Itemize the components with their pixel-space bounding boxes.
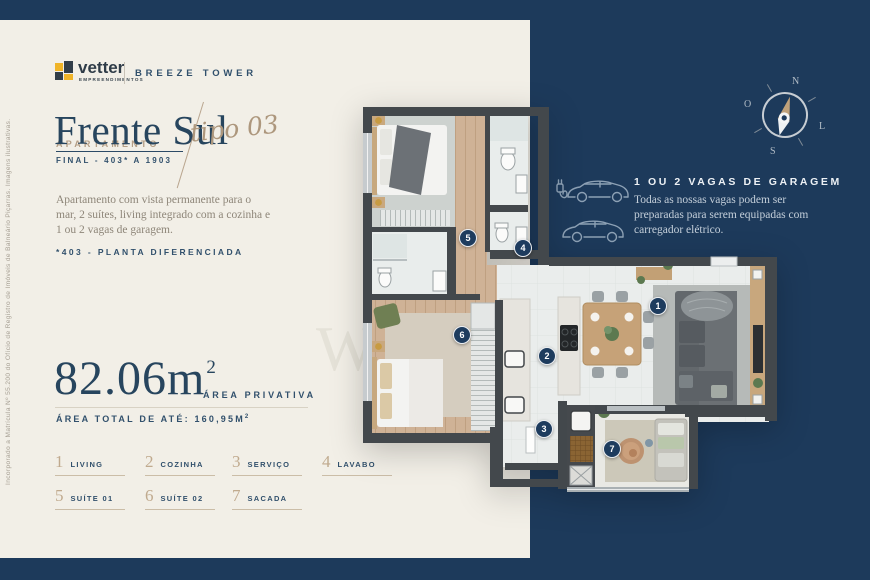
legend-item-living: 1LIVING [55,452,141,476]
plan-markers-layer: 1234567 [355,75,800,530]
total-area-line: ÁREA TOTAL DE ATÉ: 160,95M2 [56,414,250,424]
compass-east-label: L [819,121,825,132]
floor-plan: 1234567 [355,75,800,530]
legend-item-suite-02: 6SUÍTE 02 [145,486,231,510]
private-area-label: ÁREA PRIVATIVA [203,390,316,400]
private-area-value: 82.06m2 [54,351,216,406]
legend-item-sacada: 7SACADA [232,486,318,510]
plan-marker-4: 4 [514,239,532,257]
legal-side-note: Incorporado a Matrícula Nº 55.200 do Ofí… [5,105,12,485]
title-underline [56,151,183,152]
plan-marker-2: 2 [538,347,556,365]
header-divider [124,62,125,84]
legend-item-suite-01: 5SUÍTE 01 [55,486,141,510]
plan-marker-1: 1 [649,297,667,315]
project-name: BREEZE TOWER [135,68,257,79]
plan-note-403: *403 - PLANTA DIFERENCIADA [56,247,244,257]
legend-item-cozinha: 2COZINHA [145,452,231,476]
legend-item-servico: 3SERVIÇO [232,452,318,476]
plan-marker-5: 5 [459,229,477,247]
brochure-page: Incorporado a Matrícula Nº 55.200 do Ofí… [0,0,870,580]
vetter-logo-icon [55,61,74,80]
brand-name: vetter [78,59,124,76]
apartment-description: Apartamento com vista permanente para o … [56,193,274,237]
plan-marker-7: 7 [603,440,621,458]
final-range: FINAL - 403* A 1903 [56,156,172,165]
plan-marker-6: 6 [453,326,471,344]
area-divider [55,407,308,408]
sup-2: 2 [206,357,217,378]
plan-marker-3: 3 [535,420,553,438]
